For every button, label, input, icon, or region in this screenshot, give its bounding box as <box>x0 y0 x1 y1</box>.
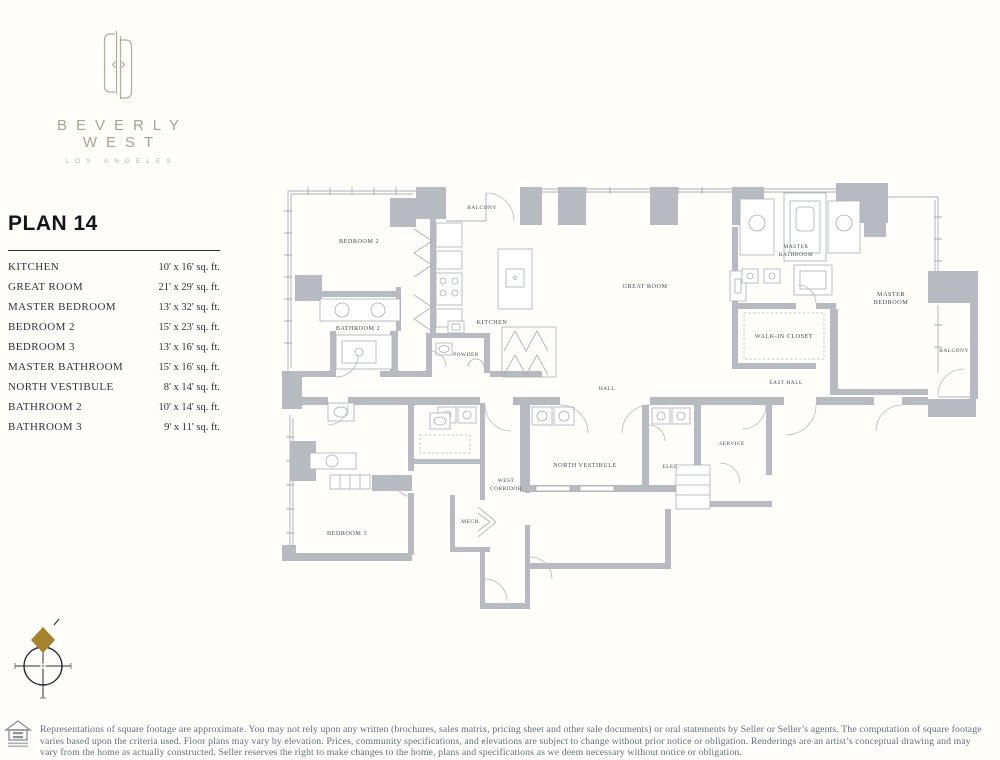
table-row: MASTER BATHROOM15' x 16' sq. ft. <box>8 361 220 381</box>
room-label-mech: MECH. <box>461 519 480 525</box>
room-label-walk-in-closet: WALK-IN CLOSET <box>755 333 813 340</box>
dimensions-table: KITCHEN10' x 16' sq. ft. GREAT ROOM21' x… <box>8 261 220 441</box>
brand-name: BEVERLY WEST <box>18 117 218 151</box>
room-value: 9' x 11' sq. ft. <box>164 422 220 433</box>
room-label-bedroom2: BEDROOM 2 <box>339 238 379 245</box>
glass-walls <box>284 187 970 553</box>
room-label: KITCHEN <box>8 261 59 273</box>
room-label: MASTER BEDROOM <box>8 301 116 313</box>
room-label-bathroom2: BATHROOM 2 <box>336 325 380 332</box>
room-value: 15' x 16' sq. ft. <box>158 362 220 373</box>
disclaimer-text: Representations of square footage are ap… <box>40 724 988 759</box>
plan-title: PLAN 14 <box>8 212 220 236</box>
room-label-west-corridor: CORRIDOR <box>490 486 522 492</box>
table-row: BATHROOM 210' x 14' sq. ft. <box>8 401 220 421</box>
divider <box>8 250 220 251</box>
room-label-west-corridor: WEST <box>498 478 515 484</box>
brand-monogram-icon <box>88 28 148 103</box>
room-label-master-bathroom: MASTER <box>784 244 809 250</box>
room-label: BEDROOM 2 <box>8 321 75 333</box>
room-label-service: SERVICE <box>719 441 745 447</box>
brand-city: LOS ANGELES <box>18 158 218 165</box>
room-label-hall: HALL <box>599 386 615 392</box>
room-label-master-bathroom: BATHROOM <box>779 252 813 258</box>
table-row: MASTER BEDROOM13' x 32' sq. ft. <box>8 301 220 321</box>
room-value: 8' x 14' sq. ft. <box>164 382 220 393</box>
compass-icon <box>10 612 76 706</box>
room-label: NORTH VESTIBULE <box>8 381 114 393</box>
plan-info-panel: PLAN 14 KITCHEN10' x 16' sq. ft. GREAT R… <box>8 212 220 441</box>
room-value: 13' x 16' sq. ft. <box>158 342 220 353</box>
room-label-bedroom3: BEDROOM 3 <box>327 530 367 537</box>
room-label: BATHROOM 2 <box>8 401 82 413</box>
table-row: NORTH VESTIBULE8' x 14' sq. ft. <box>8 381 220 401</box>
room-label-east-hall: EAST HALL <box>769 380 803 386</box>
brand-logo: BEVERLY WEST LOS ANGELES <box>18 28 218 165</box>
room-label: MASTER BATHROOM <box>8 361 123 373</box>
table-row: BEDROOM 215' x 23' sq. ft. <box>8 321 220 341</box>
table-row: GREAT ROOM21' x 29' sq. ft. <box>8 281 220 301</box>
room-label: BATHROOM 3 <box>8 421 82 433</box>
room-value: 10' x 16' sq. ft. <box>158 262 220 273</box>
table-row: KITCHEN10' x 16' sq. ft. <box>8 261 220 281</box>
room-label: GREAT ROOM <box>8 281 83 293</box>
room-value: 13' x 32' sq. ft. <box>158 302 220 313</box>
floorplan-drawing: BALCONY BEDROOM 2 BATHROOM 2 KITCHEN POW… <box>280 175 1000 625</box>
room-label-elec: ELEC. <box>662 464 679 470</box>
room-label: BEDROOM 3 <box>8 341 75 353</box>
room-value: 10' x 14' sq. ft. <box>158 402 220 413</box>
room-label-balcony-right: BALCONY <box>939 348 969 354</box>
page-root: { "brand": {"name": "BEVERLY WEST", "cit… <box>0 0 1000 760</box>
room-label-great-room: GREAT ROOM <box>623 283 668 290</box>
table-row: BATHROOM 39' x 11' sq. ft. <box>8 421 220 441</box>
room-label-powder: POWDER <box>453 352 479 358</box>
room-label-north-vestibule: NORTH VESTIBULE <box>553 462 617 469</box>
walls <box>282 183 978 609</box>
room-value: 15' x 23' sq. ft. <box>158 322 220 333</box>
room-value: 21' x 29' sq. ft. <box>158 282 220 293</box>
table-row: BEDROOM 313' x 16' sq. ft. <box>8 341 220 361</box>
room-label-balcony-top: BALCONY <box>467 205 497 211</box>
room-label-kitchen: KITCHEN <box>477 319 508 326</box>
room-label-master-bedroom: BEDROOM <box>874 299 908 306</box>
equal-housing-opportunity-icon <box>4 719 32 749</box>
room-label-master-bedroom: MASTER <box>877 291 905 298</box>
